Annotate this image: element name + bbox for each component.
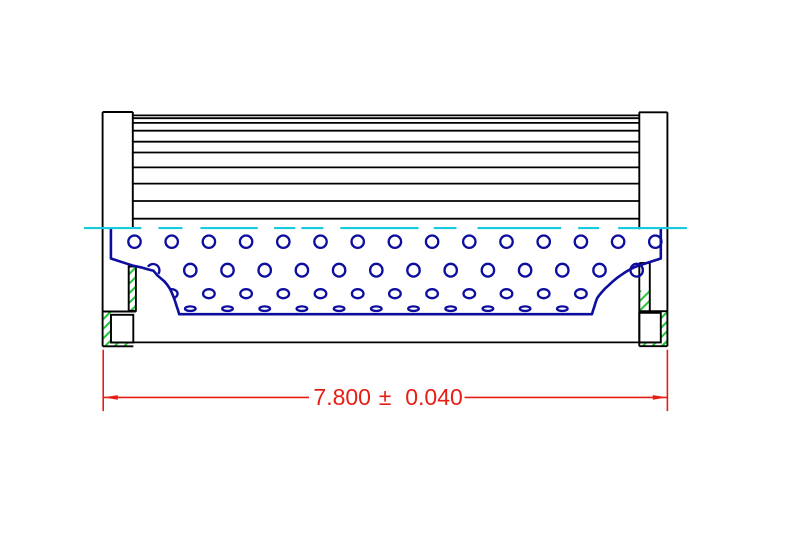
svg-text:±: ± bbox=[379, 384, 392, 410]
svg-text:7.800: 7.800 bbox=[313, 384, 371, 410]
svg-text:0.040: 0.040 bbox=[405, 384, 463, 410]
